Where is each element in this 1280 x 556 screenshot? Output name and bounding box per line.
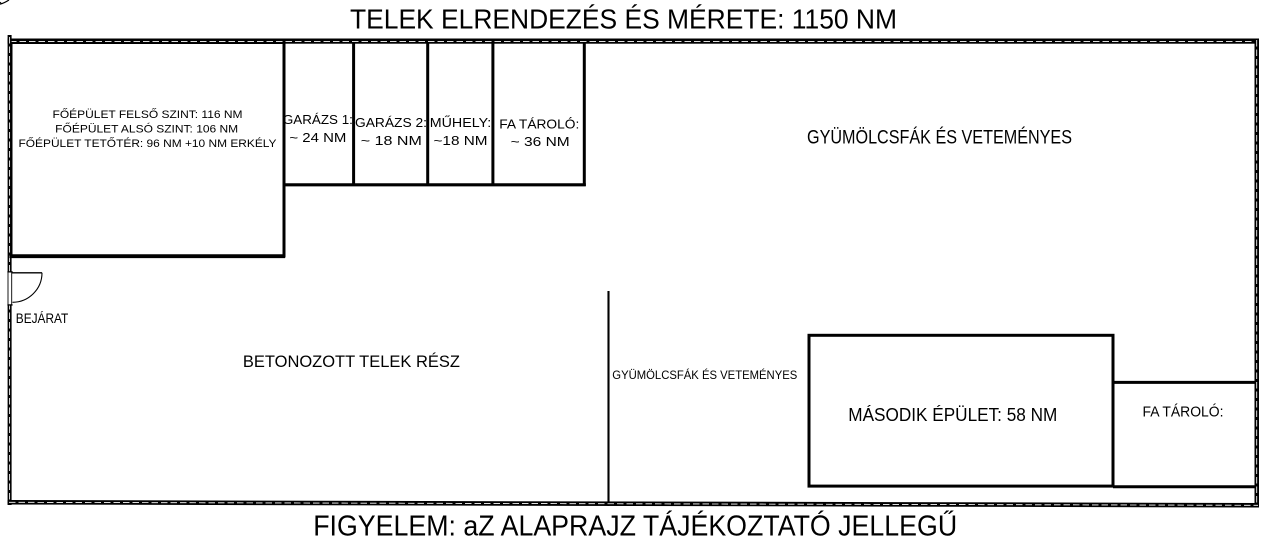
svg-text:~ 18 NM: ~ 18 NM (361, 133, 422, 148)
svg-text:FŐÉPÜLET ALSÓ SZINT: 106 NM: FŐÉPÜLET ALSÓ SZINT: 106 NM (55, 121, 238, 135)
svg-text:BEJÁRAT: BEJÁRAT (16, 311, 69, 326)
svg-text:GYÜMÖLCSFÁK ÉS VETEMÉNYES: GYÜMÖLCSFÁK ÉS VETEMÉNYES (612, 368, 797, 382)
svg-text:~ 24 NM: ~ 24 NM (289, 130, 346, 145)
svg-text:~18 NM: ~18 NM (434, 133, 488, 148)
svg-text:FŐÉPÜLET TETŐTÉR: 96 NM +10 NM: FŐÉPÜLET TETŐTÉR: 96 NM +10 NM ERKÉLY (19, 136, 278, 150)
svg-text:GARÁZS 2:: GARÁZS 2: (355, 115, 427, 130)
svg-text:MÁSODIK ÉPÜLET: 58 NM: MÁSODIK ÉPÜLET: 58 NM (848, 405, 1057, 425)
svg-text:GARÁZS 1:: GARÁZS 1: (283, 112, 353, 127)
svg-text:FA TÁROLÓ:: FA TÁROLÓ: (499, 117, 579, 132)
svg-text:TELEK ELRENDEZÉS ÉS MÉRETE: 11: TELEK ELRENDEZÉS ÉS MÉRETE: 1150 NM (350, 4, 897, 35)
svg-text:FIGYELEM: aZ ALAPRAJZ TÁJÉKOZT: FIGYELEM: aZ ALAPRAJZ TÁJÉKOZTATÓ JELLEG… (313, 510, 957, 543)
svg-text:MŰHELY:: MŰHELY: (430, 115, 492, 130)
svg-text:BETONOZOTT TELEK RÉSZ: BETONOZOTT TELEK RÉSZ (243, 352, 460, 371)
svg-text:GYÜMÖLCSFÁK ÉS VETEMÉNYES: GYÜMÖLCSFÁK ÉS VETEMÉNYES (807, 125, 1072, 148)
svg-text:~ 36 NM: ~ 36 NM (511, 134, 570, 149)
svg-text:FŐÉPÜLET FELSŐ SZINT: 116 NM: FŐÉPÜLET FELSŐ SZINT: 116 NM (53, 107, 243, 121)
svg-text:FA TÁROLÓ:: FA TÁROLÓ: (1143, 403, 1224, 420)
